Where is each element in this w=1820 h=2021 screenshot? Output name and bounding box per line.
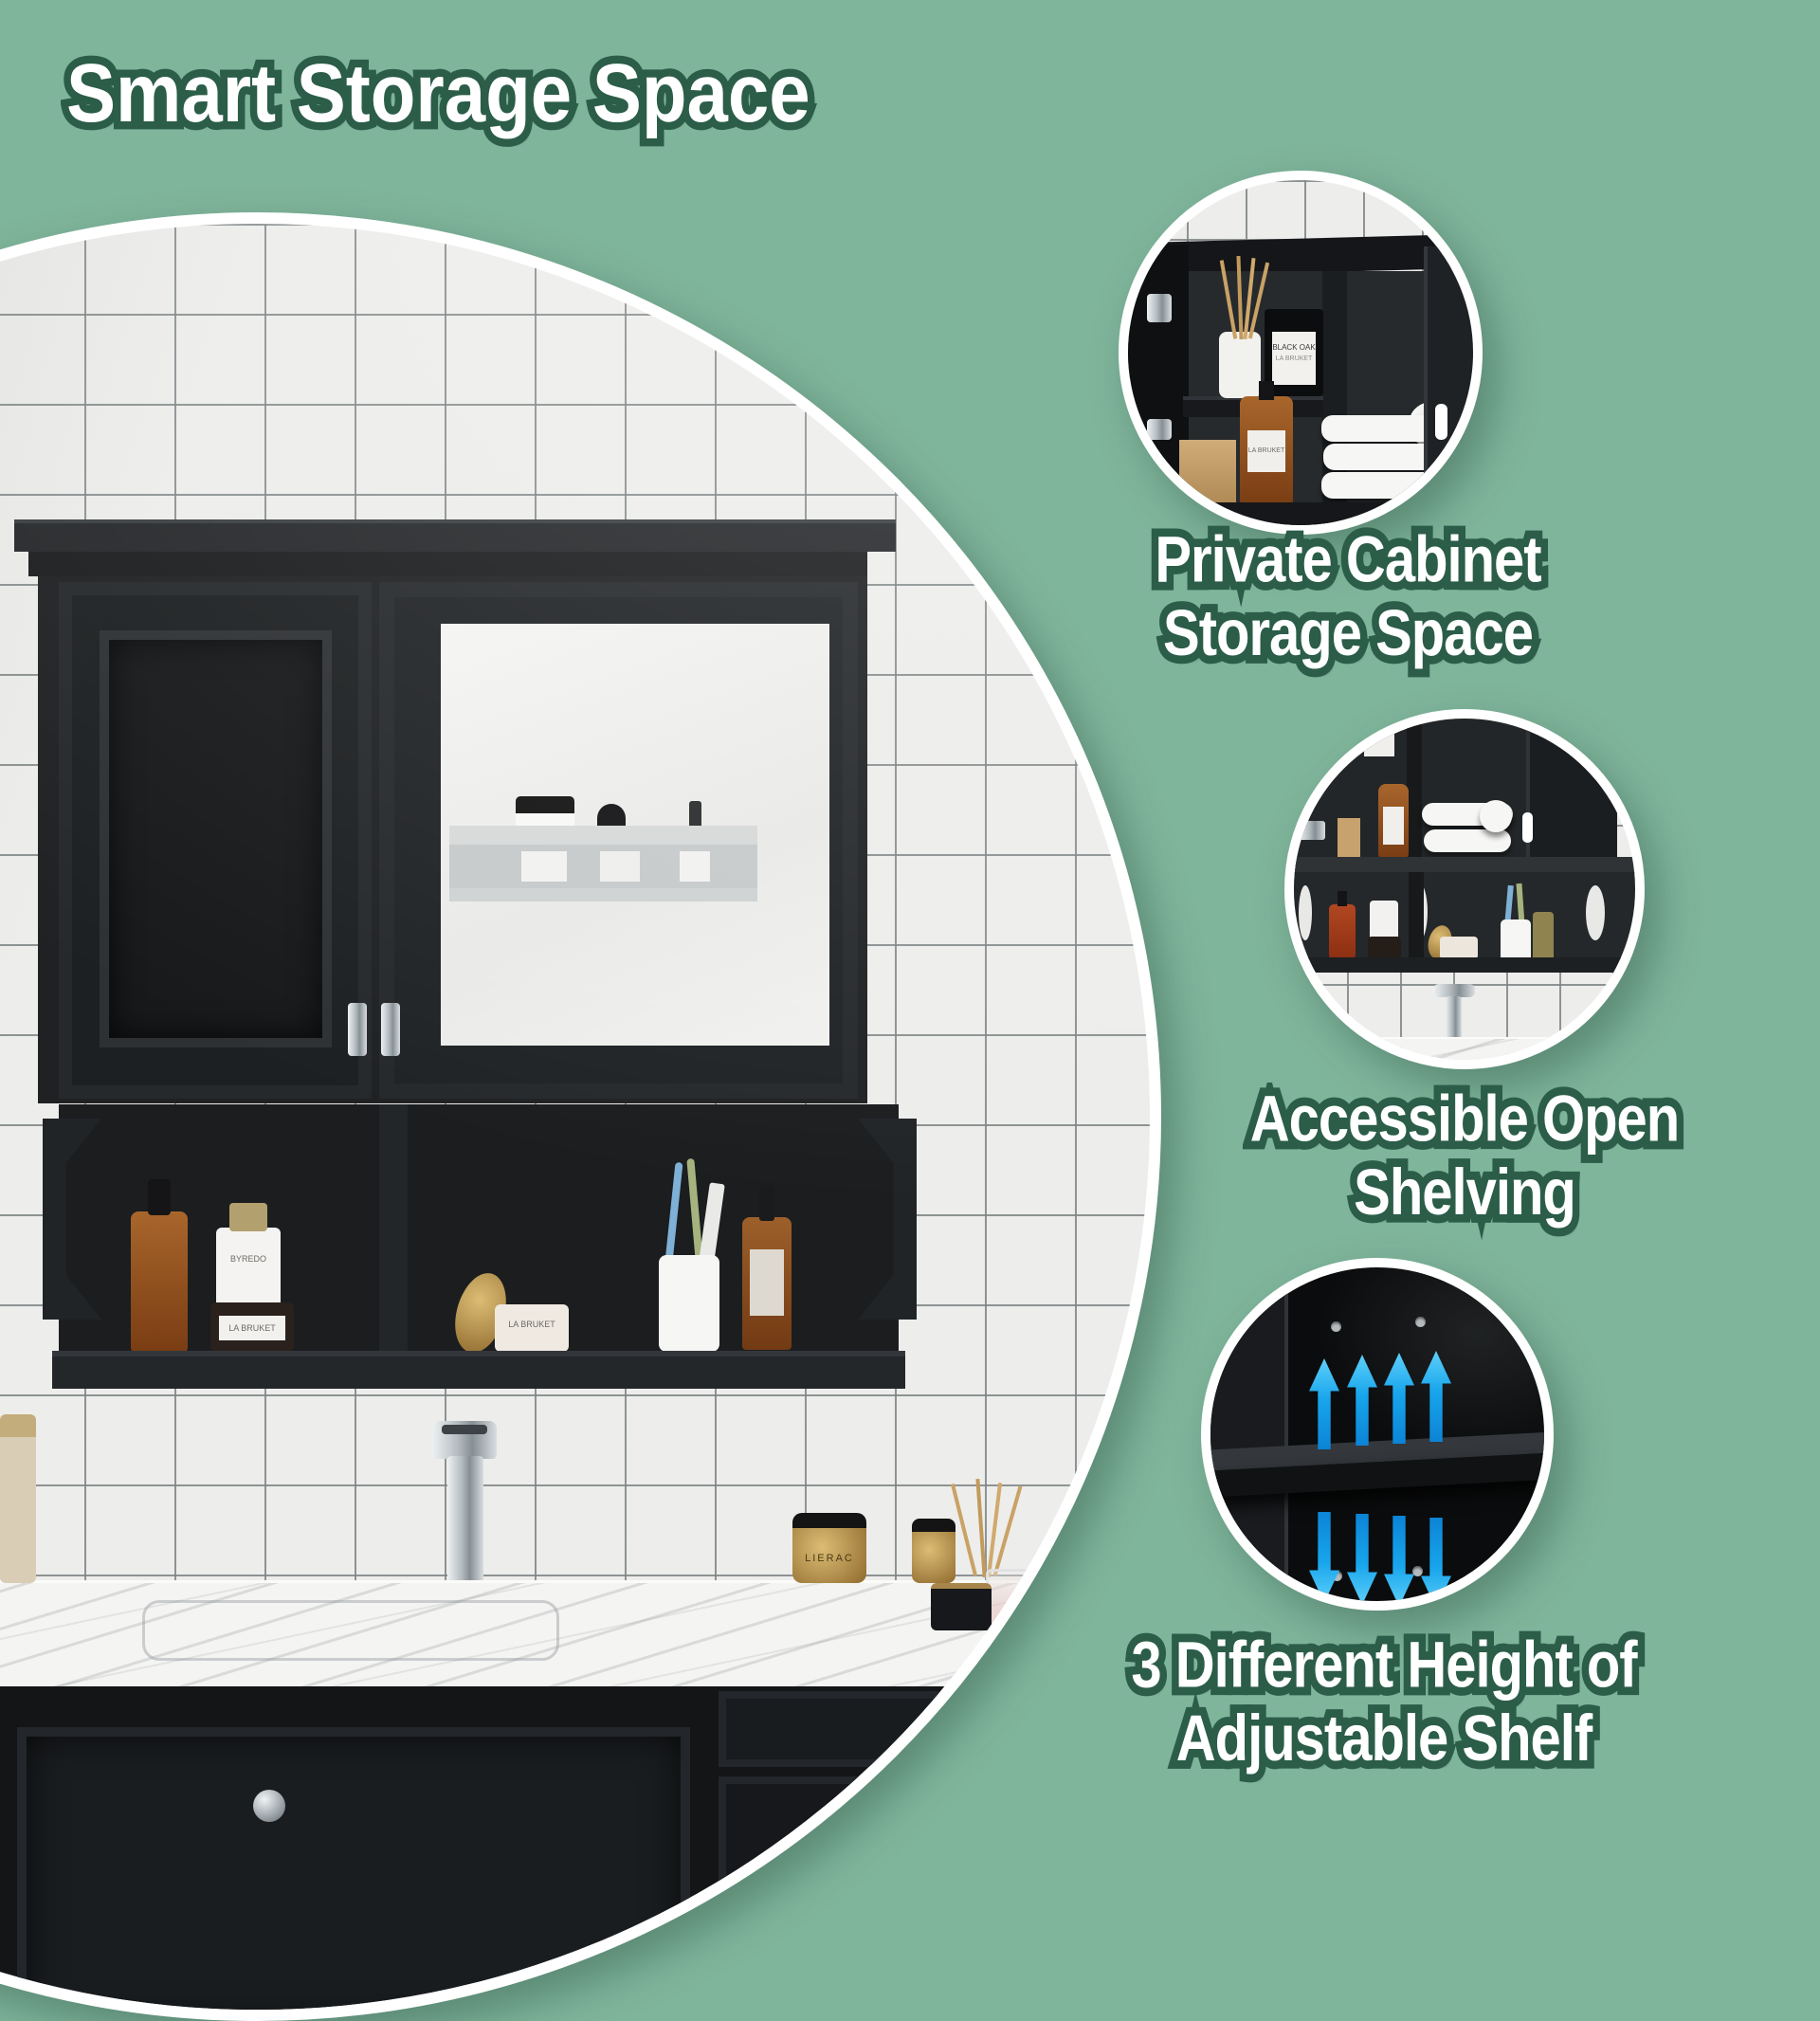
caption-line: Adjustable Shelf bbox=[1014, 1702, 1754, 1776]
reed-stick bbox=[975, 1479, 986, 1577]
caption-open-shelving: Accessible Open Shelving bbox=[1114, 1083, 1815, 1230]
counter-small bbox=[1284, 1037, 1645, 1069]
amber-bottle-small-label bbox=[1383, 807, 1404, 845]
pump-top bbox=[148, 1179, 171, 1215]
amber-bottle-label: LA BRUKET bbox=[1247, 430, 1285, 472]
caption-line: Shelving bbox=[1114, 1156, 1815, 1230]
hinge-small bbox=[1299, 821, 1325, 840]
left-door-handle bbox=[348, 1003, 367, 1056]
sink-basin-outline bbox=[142, 1600, 559, 1661]
mirror-reflected-shelf-lip bbox=[449, 888, 757, 901]
la-bruket-jar-left: LA BRUKET bbox=[210, 1302, 294, 1352]
mirror-door-handle-small bbox=[1522, 812, 1533, 843]
glass-diffuser-vessel bbox=[986, 1569, 1037, 1631]
mirror-reflected-shelf-top bbox=[449, 826, 757, 845]
candle-label: BLACK OAK LA BRUKET bbox=[1272, 332, 1316, 385]
bracket-cutout bbox=[1299, 885, 1312, 940]
vanity-right-door bbox=[719, 1776, 1117, 2021]
mirror-reflected-bottle-3 bbox=[680, 851, 710, 882]
byredo-cap bbox=[229, 1203, 267, 1231]
mirror-door-handle bbox=[1435, 404, 1447, 440]
right-door-handle bbox=[381, 1003, 400, 1056]
diffuser-bottle bbox=[1219, 332, 1261, 398]
open-shelf-divider-small bbox=[1409, 872, 1424, 959]
cabinet-crown-molding-lower bbox=[28, 552, 867, 576]
door-hinge-lower bbox=[1147, 419, 1172, 440]
amber-bottle-small bbox=[1378, 784, 1409, 858]
caption-line: Private Cabinet bbox=[997, 523, 1699, 597]
candle-label-line1: BLACK OAK bbox=[1272, 343, 1316, 352]
la-bruket-jar-left-label: LA BRUKET bbox=[219, 1316, 285, 1340]
bracket-cutout bbox=[1586, 885, 1605, 940]
amber-bottle-cap bbox=[1259, 381, 1274, 400]
door-hinge-upper bbox=[1147, 294, 1172, 322]
black-gold-jar bbox=[931, 1583, 992, 1630]
olive-bottle-small bbox=[1533, 912, 1554, 961]
shelf-pin-hole bbox=[1412, 1566, 1423, 1576]
caption-adjustable-shelf: 3 Different Height of Adjustable Shelf bbox=[1014, 1629, 1754, 1776]
open-shelf-lip-small bbox=[1284, 957, 1645, 973]
caption-private-cabinet: Private Cabinet Storage Space bbox=[997, 523, 1699, 671]
la-bruket-jar-right: LA BRUKET bbox=[495, 1304, 569, 1352]
faucet-top-detail bbox=[442, 1425, 487, 1434]
candle-label-small bbox=[1364, 724, 1394, 756]
lierac-jar: LIERAC bbox=[792, 1513, 866, 1583]
baicapil-soap-bottle bbox=[742, 1217, 792, 1350]
lierac-jar-label: LIERAC bbox=[796, 1553, 863, 1564]
main-product-photo-circle: BYREDO LA BRUKET LA BRUKET LIERAC bbox=[0, 212, 1161, 2021]
open-door-left bbox=[1119, 245, 1189, 535]
upper-divider bbox=[1407, 709, 1422, 870]
white-jar-small bbox=[1440, 937, 1478, 959]
page-title-text: Smart Storage Space bbox=[66, 51, 1109, 134]
vanity-drawer-front bbox=[17, 1727, 690, 2021]
la-bruket-jar-right-label: LA BRUKET bbox=[500, 1320, 564, 1329]
toothbrush-cup bbox=[659, 1255, 719, 1352]
candle-label-line2: LA BRUKET bbox=[1272, 355, 1316, 362]
red-pump-top bbox=[1338, 891, 1347, 906]
amber-bottle-interior: LA BRUKET bbox=[1240, 396, 1293, 504]
faucet-head bbox=[432, 1421, 497, 1459]
faucet-body bbox=[447, 1456, 483, 1585]
open-mirror-door-small bbox=[1526, 713, 1617, 865]
shelf-pin-hole bbox=[1415, 1317, 1426, 1327]
cabinet-left-door-panel bbox=[100, 630, 332, 1047]
reed-stick bbox=[951, 1484, 977, 1576]
mirror-reflected-bottle-1 bbox=[521, 851, 567, 882]
mirror bbox=[441, 624, 829, 1046]
dark-jar-small bbox=[1368, 937, 1401, 959]
shelf-pin-hole bbox=[1331, 1321, 1341, 1332]
soap-label bbox=[750, 1249, 784, 1316]
wood-block bbox=[1179, 440, 1236, 504]
shelf-center-divider bbox=[379, 1104, 408, 1353]
folded-towel-small bbox=[1424, 829, 1511, 852]
feature-circle-open-shelving bbox=[1284, 709, 1645, 1069]
feature-circle-private-cabinet: BLACK OAK LA BRUKET LA BRUKET bbox=[1119, 171, 1483, 535]
caption-line: 3 Different Height of bbox=[1014, 1629, 1754, 1702]
feature-circle-adjustable-shelf bbox=[1201, 1258, 1554, 1611]
open-shelf-floor bbox=[52, 1351, 905, 1389]
wood-block-small bbox=[1338, 818, 1360, 858]
cabinet-crown-molding-top bbox=[14, 519, 896, 552]
byredo-label: BYREDO bbox=[220, 1254, 277, 1264]
mirror-reflected-bottle-2 bbox=[600, 851, 640, 882]
caption-line: Accessible Open bbox=[1114, 1083, 1815, 1156]
soap-pump-top bbox=[759, 1185, 774, 1221]
tall-beige-bottle bbox=[0, 1414, 36, 1583]
rolled-towel-small bbox=[1480, 800, 1512, 832]
open-mirror-door-edge bbox=[1424, 246, 1477, 535]
faucet-head-small bbox=[1433, 984, 1475, 997]
caption-line: Storage Space bbox=[997, 597, 1699, 671]
product-infographic: { "canvas": { "background": "#7fb59b", "… bbox=[0, 0, 1820, 1820]
red-pump-bottle-small bbox=[1329, 904, 1356, 959]
vanity-drawer-knob bbox=[253, 1790, 285, 1822]
page-title: Smart Storage Space bbox=[66, 51, 1109, 134]
amber-pump-bottle bbox=[131, 1211, 188, 1352]
